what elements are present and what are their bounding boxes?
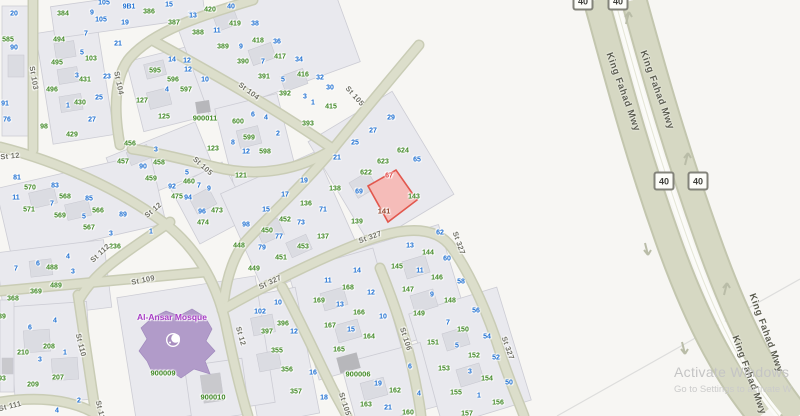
parcel-label-900009: 900009 bbox=[150, 369, 175, 378]
parcel-label-83: 83 bbox=[51, 183, 59, 190]
parcel-label-2: 2 bbox=[276, 131, 280, 138]
parcel-label-38: 38 bbox=[251, 21, 259, 28]
parcel-label-32: 32 bbox=[316, 75, 324, 82]
parcel-label-7: 7 bbox=[446, 320, 450, 327]
parcel-label-418: 418 bbox=[252, 38, 264, 45]
parcel-label-169: 169 bbox=[313, 298, 325, 305]
parcel-label-139: 139 bbox=[351, 219, 363, 226]
parcel-label-4: 4 bbox=[264, 115, 268, 122]
parcel-label-143: 143 bbox=[408, 194, 420, 201]
parcel-label-9B1: 9B1 bbox=[123, 4, 136, 11]
parcel-label-570: 570 bbox=[24, 185, 36, 192]
parcel-label-3: 3 bbox=[154, 147, 158, 154]
parcel-label-3: 3 bbox=[71, 269, 75, 276]
parcel-label-420: 420 bbox=[204, 7, 216, 14]
parcel-label-5: 5 bbox=[82, 214, 86, 221]
parcel-label-121: 121 bbox=[235, 173, 247, 180]
parcel-label-7: 7 bbox=[14, 266, 18, 273]
parcel-label-151: 151 bbox=[427, 340, 439, 347]
parcel-label-92: 92 bbox=[168, 184, 176, 191]
parcel-label-207: 207 bbox=[52, 375, 64, 382]
parcel-label-7: 7 bbox=[261, 59, 265, 66]
parcel-label-156: 156 bbox=[492, 400, 504, 407]
parcel-label-623: 623 bbox=[377, 159, 389, 166]
parcel-label-387: 387 bbox=[168, 20, 180, 27]
parcel-label-39: 39 bbox=[0, 314, 6, 321]
parcel-label-10: 10 bbox=[379, 314, 387, 321]
parcel-label-6: 6 bbox=[408, 364, 412, 371]
parcel-label-136: 136 bbox=[300, 201, 312, 208]
parcel-label-94: 94 bbox=[184, 195, 192, 202]
parcel-label-65: 65 bbox=[413, 157, 421, 164]
parcel-label-208: 208 bbox=[43, 344, 55, 351]
parcel-label-391: 391 bbox=[258, 74, 270, 81]
crescent-icon bbox=[166, 333, 180, 347]
parcel-label-429: 429 bbox=[66, 132, 78, 139]
parcel-label-595: 595 bbox=[149, 68, 161, 75]
parcel-label-900010: 900010 bbox=[200, 393, 225, 402]
parcel-label-27: 27 bbox=[369, 128, 377, 135]
parcel-label-451: 451 bbox=[275, 255, 287, 262]
parcel-label-600: 600 bbox=[232, 119, 244, 126]
parcel-label-1: 1 bbox=[311, 100, 315, 107]
parcel-label-11: 11 bbox=[416, 268, 423, 275]
parcel-label-5: 5 bbox=[281, 77, 285, 84]
parcel-label-393: 393 bbox=[302, 121, 314, 128]
parcel-label-76: 76 bbox=[3, 117, 11, 124]
parcel-label-145: 145 bbox=[391, 264, 403, 271]
parcel-label-127: 127 bbox=[136, 98, 148, 105]
parcel-label-149: 149 bbox=[413, 311, 425, 318]
parcel-label-417: 417 bbox=[274, 54, 286, 61]
parcel-label-568: 568 bbox=[59, 194, 71, 201]
parcel-label-6: 6 bbox=[251, 112, 255, 119]
parcel-label-12: 12 bbox=[184, 67, 192, 74]
parcel-label-8: 8 bbox=[231, 140, 235, 147]
parcel-label-389: 389 bbox=[217, 44, 229, 51]
parcel-label-397: 397 bbox=[261, 329, 273, 336]
parcel-label-448: 448 bbox=[233, 243, 245, 250]
parcel-label-27: 27 bbox=[88, 117, 96, 124]
parcel-label-23: 23 bbox=[103, 74, 111, 81]
parcel-label-453: 453 bbox=[297, 244, 309, 251]
parcel-label-153: 153 bbox=[438, 366, 450, 373]
parcel-label-7: 7 bbox=[50, 201, 54, 208]
parcel-label-30: 30 bbox=[326, 85, 334, 92]
route-40-shield-1: 40 bbox=[608, 0, 629, 11]
parcel-label-102: 102 bbox=[254, 309, 266, 316]
parcel-label-384: 384 bbox=[57, 11, 69, 18]
parcel-label-21: 21 bbox=[384, 405, 392, 412]
mosque-label: Al-Ansar Mosque bbox=[137, 312, 207, 322]
parcel-label-494: 494 bbox=[53, 37, 65, 44]
parcel-label-14: 14 bbox=[353, 268, 361, 275]
parcel-label-1: 1 bbox=[477, 393, 481, 400]
parcel-label-123: 123 bbox=[207, 146, 219, 153]
parcel-label-167: 167 bbox=[324, 323, 336, 330]
parcel-label-390: 390 bbox=[237, 59, 249, 66]
parcel-label-452: 452 bbox=[279, 217, 291, 224]
parcel-label-160: 160 bbox=[402, 410, 414, 416]
parcel-label-15: 15 bbox=[347, 327, 355, 334]
parcel-label-458: 458 bbox=[153, 160, 165, 167]
parcel-label-496: 496 bbox=[46, 87, 58, 94]
parcel-label-71: 71 bbox=[319, 207, 327, 214]
parcel-label-13: 13 bbox=[336, 302, 344, 309]
parcel-label-7: 7 bbox=[84, 31, 88, 38]
parcel-label-152: 152 bbox=[468, 353, 480, 360]
parcel-label-90: 90 bbox=[139, 164, 147, 171]
parcel-label-11: 11 bbox=[12, 195, 19, 202]
parcel-label-566: 566 bbox=[92, 208, 104, 215]
parcel-label-18: 18 bbox=[320, 395, 328, 402]
parcel-label-19: 19 bbox=[374, 381, 382, 388]
parcel-label-624: 624 bbox=[397, 148, 409, 155]
parcel-label-6: 6 bbox=[28, 325, 32, 332]
parcel-label-599: 599 bbox=[243, 135, 255, 142]
parcel-label-473: 473 bbox=[211, 208, 223, 215]
parcel-label-474: 474 bbox=[197, 220, 209, 227]
parcel-label-93: 93 bbox=[0, 376, 6, 383]
parcel-label-449: 449 bbox=[248, 266, 260, 273]
parcel-label-12: 12 bbox=[290, 329, 298, 336]
parcel-label-91: 91 bbox=[1, 101, 9, 108]
parcel-label-4: 4 bbox=[55, 408, 59, 415]
parcel-label-5: 5 bbox=[80, 50, 84, 57]
parcel-label-17: 17 bbox=[281, 192, 289, 199]
parcel-label-155: 155 bbox=[450, 390, 462, 397]
parcel-label-147: 147 bbox=[402, 287, 414, 294]
parcel-label-21: 21 bbox=[333, 155, 341, 162]
route-40-shield-2: 40 bbox=[654, 172, 675, 191]
parcel-label-25: 25 bbox=[95, 95, 103, 102]
parcel-label-144: 144 bbox=[422, 250, 434, 257]
parcel-label-4: 4 bbox=[165, 87, 169, 94]
parcel-label-1: 1 bbox=[66, 103, 70, 110]
parcel-label-12: 12 bbox=[183, 58, 191, 65]
parcel-label-419: 419 bbox=[229, 21, 241, 28]
parcel-label-166: 166 bbox=[353, 310, 365, 317]
parcel-label-9: 9 bbox=[90, 10, 94, 17]
parcel-label-15: 15 bbox=[262, 207, 270, 214]
parcel-label-103: 103 bbox=[85, 56, 97, 63]
parcel-label-9: 9 bbox=[239, 44, 243, 51]
parcel-label-165: 165 bbox=[333, 347, 345, 354]
parcel-label-98: 98 bbox=[40, 124, 48, 131]
parcel-label-571: 571 bbox=[23, 207, 35, 214]
parcel-label-15: 15 bbox=[165, 2, 173, 9]
parcel-label-125: 125 bbox=[158, 114, 170, 121]
parcel-label-105: 105 bbox=[98, 0, 110, 7]
parcel-label-154: 154 bbox=[481, 376, 493, 383]
parcel-label-5: 5 bbox=[185, 170, 189, 177]
parcel-label-431: 431 bbox=[79, 77, 91, 84]
parcel-label-168: 168 bbox=[342, 285, 354, 292]
parcel-label-3: 3 bbox=[468, 369, 472, 376]
parcel-label-475: 475 bbox=[171, 194, 183, 201]
parcel-label-56: 56 bbox=[472, 308, 480, 315]
parcel-label-90: 90 bbox=[10, 45, 18, 52]
parcel-label-164: 164 bbox=[363, 334, 375, 341]
parcel-label-585: 585 bbox=[2, 37, 14, 44]
parcel-label-6: 6 bbox=[36, 261, 40, 268]
parcel-label-29: 29 bbox=[387, 115, 395, 122]
parcel-label-457: 457 bbox=[117, 159, 129, 166]
parcel-label-567: 567 bbox=[83, 225, 95, 232]
parcel-label-900011: 900011 bbox=[193, 114, 218, 123]
parcel-label-73: 73 bbox=[297, 220, 305, 227]
parcel-label-10: 10 bbox=[201, 77, 209, 84]
parcel-label-2: 2 bbox=[77, 398, 81, 405]
parcel-label-900006: 900006 bbox=[345, 370, 370, 379]
parcel-label-50: 50 bbox=[505, 380, 513, 387]
parcel-label-58: 58 bbox=[457, 279, 465, 286]
parcel-label-456: 456 bbox=[124, 141, 136, 148]
parcel-label-459: 459 bbox=[145, 176, 157, 183]
parcel-label-77: 77 bbox=[275, 234, 283, 241]
parcel-label-20: 20 bbox=[10, 11, 18, 18]
parcel-label-138: 138 bbox=[329, 186, 341, 193]
map-canvas[interactable]: 205859091769838491051059B119386153871349… bbox=[0, 0, 800, 416]
parcel-label-13: 13 bbox=[406, 243, 414, 250]
parcel-label-21: 21 bbox=[114, 41, 122, 48]
parcel-label-5: 5 bbox=[455, 343, 459, 350]
parcel-label-355: 355 bbox=[271, 348, 283, 355]
parcel-label-19: 19 bbox=[300, 178, 308, 185]
parcel-label-3: 3 bbox=[38, 357, 42, 364]
parcel-label-162: 162 bbox=[389, 388, 401, 395]
parcel-label-79: 79 bbox=[258, 245, 266, 252]
route-40-shield-0: 40 bbox=[573, 0, 594, 11]
parcel-label-488: 488 bbox=[46, 265, 58, 272]
parcel-label-34: 34 bbox=[295, 57, 303, 64]
parcel-label-98: 98 bbox=[242, 222, 250, 229]
parcel-label-52: 52 bbox=[492, 355, 500, 362]
parcel-label-416: 416 bbox=[297, 72, 309, 79]
parcel-label-146: 146 bbox=[431, 275, 443, 282]
parcel-label-4: 4 bbox=[417, 391, 421, 398]
parcel-label-16: 16 bbox=[309, 370, 317, 377]
parcel-label-157: 157 bbox=[461, 411, 473, 416]
parcel-label-9: 9 bbox=[207, 186, 211, 193]
parcel-label-25: 25 bbox=[351, 140, 359, 147]
parcel-label-4: 4 bbox=[66, 254, 70, 261]
map-base-layer bbox=[0, 0, 800, 416]
parcel-label-3: 3 bbox=[109, 231, 113, 238]
parcel-label-148: 148 bbox=[444, 298, 456, 305]
parcel-label-369: 369 bbox=[30, 289, 42, 296]
parcel-label-62: 62 bbox=[436, 230, 444, 237]
parcel-label-40: 40 bbox=[227, 4, 235, 11]
parcel-label-356: 356 bbox=[281, 367, 293, 374]
parcel-label-489: 489 bbox=[50, 283, 62, 290]
parcel-label-137: 137 bbox=[317, 234, 329, 241]
parcel-label-60: 60 bbox=[443, 256, 451, 263]
parcel-label-392: 392 bbox=[279, 91, 291, 98]
parcel-label-1: 1 bbox=[63, 350, 67, 357]
parcel-label-460: 460 bbox=[183, 179, 195, 186]
parcel-label-9: 9 bbox=[430, 292, 434, 299]
parcel-label-597: 597 bbox=[180, 87, 192, 94]
parcel-label-386: 386 bbox=[143, 9, 155, 16]
parcel-label-85: 85 bbox=[85, 196, 93, 203]
parcel-label-7: 7 bbox=[197, 183, 201, 190]
parcel-label-105: 105 bbox=[95, 17, 107, 24]
parcel-label-4: 4 bbox=[53, 318, 57, 325]
parcel-label-13: 13 bbox=[189, 13, 197, 20]
parcel-label-96: 96 bbox=[198, 209, 206, 216]
parcel-label-81: 81 bbox=[13, 175, 21, 182]
selected-parcel-label-141[interactable]: 141 bbox=[378, 207, 391, 216]
parcel-label-69: 69 bbox=[355, 189, 363, 196]
parcel-label-12: 12 bbox=[242, 149, 250, 156]
parcel-label-163: 163 bbox=[360, 402, 372, 409]
parcel-label-450: 450 bbox=[261, 228, 273, 235]
parcel-label-54: 54 bbox=[483, 334, 491, 341]
parcel-label-10: 10 bbox=[274, 300, 282, 307]
parcel-label-89: 89 bbox=[119, 212, 127, 219]
parcel-label-12: 12 bbox=[367, 290, 375, 297]
parcel-label-622: 622 bbox=[360, 170, 372, 177]
parcel-label-36: 36 bbox=[273, 39, 281, 46]
route-40-shield-3: 40 bbox=[688, 172, 709, 191]
parcel-label-596: 596 bbox=[167, 77, 179, 84]
parcel-label-598: 598 bbox=[259, 149, 271, 156]
parcel-label-357: 357 bbox=[290, 389, 302, 396]
parcel-label-11: 11 bbox=[324, 278, 331, 285]
parcel-label-14: 14 bbox=[168, 57, 176, 64]
parcel-label-1: 1 bbox=[149, 229, 153, 236]
parcel-label-210: 210 bbox=[17, 350, 29, 357]
parcel-label-388: 388 bbox=[192, 30, 204, 37]
parcel-label-495: 495 bbox=[51, 60, 63, 67]
parcel-label-3: 3 bbox=[303, 94, 307, 101]
parcel-label-396: 396 bbox=[277, 321, 289, 328]
parcel-label-209: 209 bbox=[27, 382, 39, 389]
parcel-label-19: 19 bbox=[121, 20, 129, 27]
parcel-label-368: 368 bbox=[7, 296, 19, 303]
parcel-label-569: 569 bbox=[54, 213, 66, 220]
parcel-label-150: 150 bbox=[457, 327, 469, 334]
parcel-label-11: 11 bbox=[213, 28, 220, 35]
selected-parcel-label-67[interactable]: 67 bbox=[385, 173, 393, 180]
parcel-label-415: 415 bbox=[325, 104, 337, 111]
parcel-label-430: 430 bbox=[74, 100, 86, 107]
